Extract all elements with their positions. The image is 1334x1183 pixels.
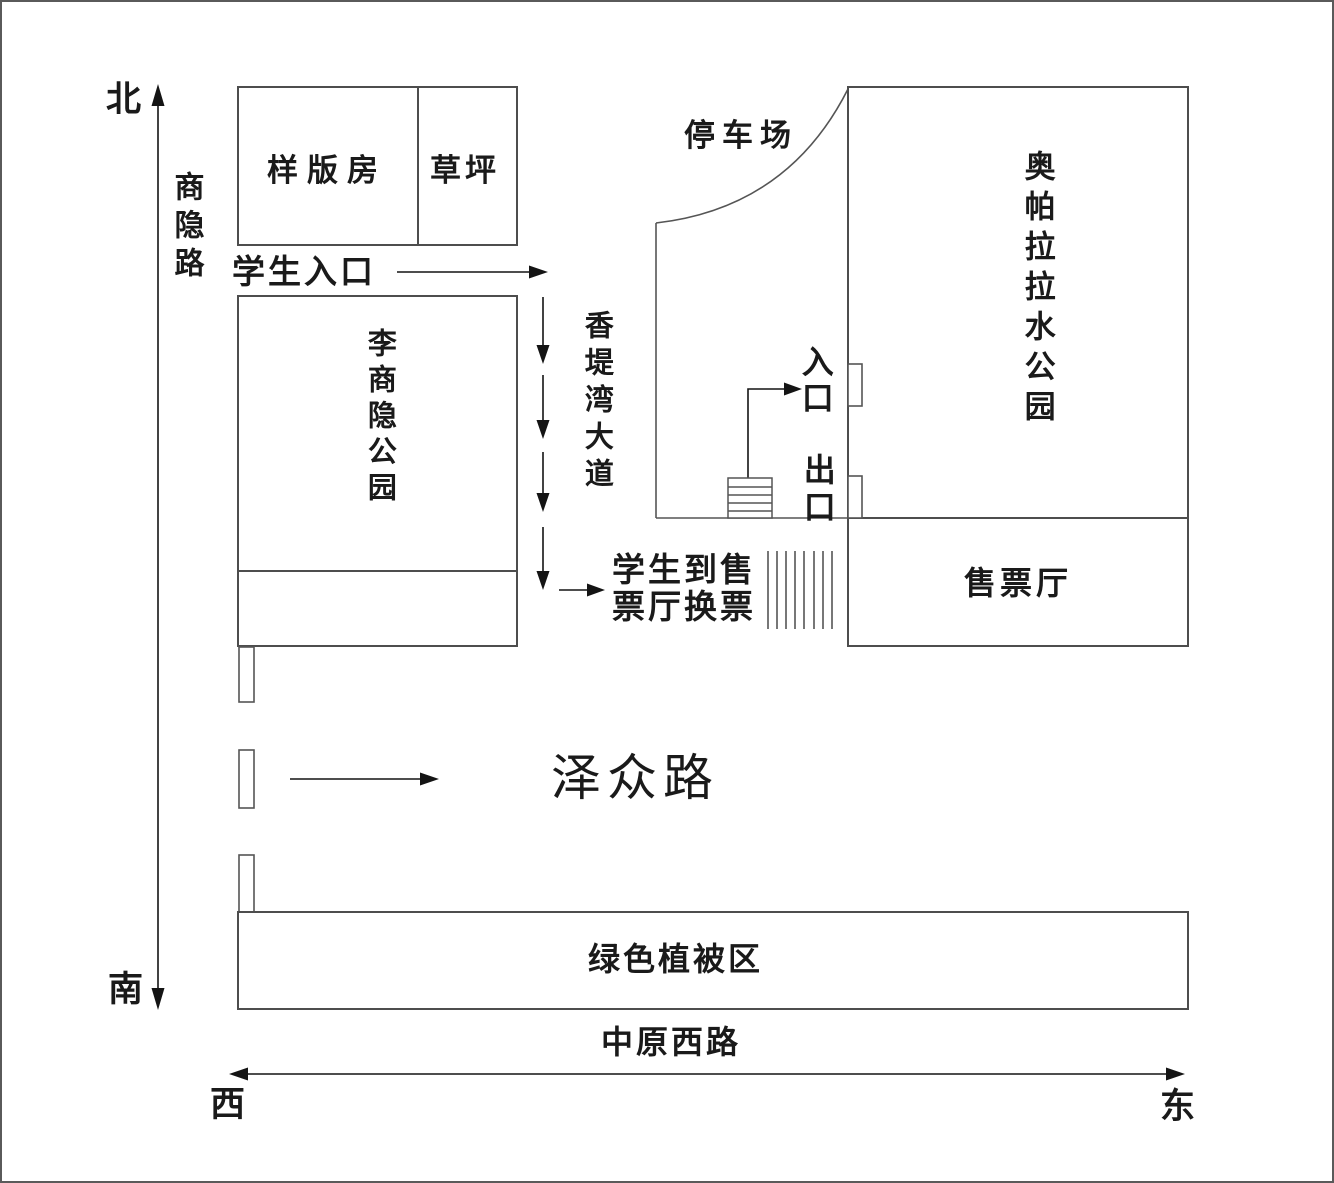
entrance-label: 入口 (797, 345, 834, 417)
ticket-hall-label: 售票厅 (964, 565, 1072, 602)
model-room-label: 样版房 (267, 153, 387, 189)
exit-door (848, 476, 862, 518)
stairs (728, 478, 772, 518)
xiangtiwan-arrow-chain (537, 297, 550, 590)
compass-west-label: 西 (210, 1085, 245, 1125)
ticket-note-label: 学生到售票厅换票 (612, 551, 764, 625)
li-shangyin-park-label: 李商隐公园 (362, 328, 395, 508)
parking-curve (656, 89, 848, 223)
west-arrowhead (229, 1068, 248, 1081)
compass-south-label: 南 (108, 970, 143, 1010)
zezhong-road-label: 泽众路 (551, 750, 719, 808)
compass-east-label: 东 (1160, 1087, 1195, 1127)
entrance-arrow (748, 383, 802, 479)
xiangtiwan-avenue-label: 香堤湾大道 (579, 310, 612, 495)
student-entrance-arrow (397, 266, 548, 279)
green-area-label: 绿色植被区 (588, 941, 763, 978)
exit-label: 出口 (799, 453, 836, 527)
entrance-door (848, 364, 862, 406)
parking-lot-label: 停车场 (684, 118, 798, 154)
zhongyuan-road-arrow (229, 1068, 1185, 1081)
crosswalk (768, 551, 832, 629)
zhongyuan-west-road-label: 中原西路 (601, 1024, 741, 1061)
north-arrowhead (152, 84, 165, 106)
shangyin-road-label: 商隐路 (168, 171, 203, 285)
water-park-label: 奥帕拉拉水公园 (1019, 150, 1055, 430)
ticket-note-arrow (559, 584, 605, 597)
water-park-box (848, 87, 1188, 518)
gate-pillars (239, 647, 254, 912)
south-arrowhead (152, 988, 165, 1010)
map-page: 北 南 西 东 商隐路 香堤湾大道 泽众路 中原西路 样版房 草坪 学生入口 李… (0, 0, 1334, 1183)
north-south-axis (152, 84, 165, 1010)
east-arrowhead (1166, 1068, 1185, 1081)
student-entrance-label: 学生入口 (232, 253, 376, 291)
zezhong-road-arrow (290, 773, 439, 786)
compass-north-label: 北 (106, 80, 141, 120)
lawn-label: 草坪 (430, 153, 500, 189)
